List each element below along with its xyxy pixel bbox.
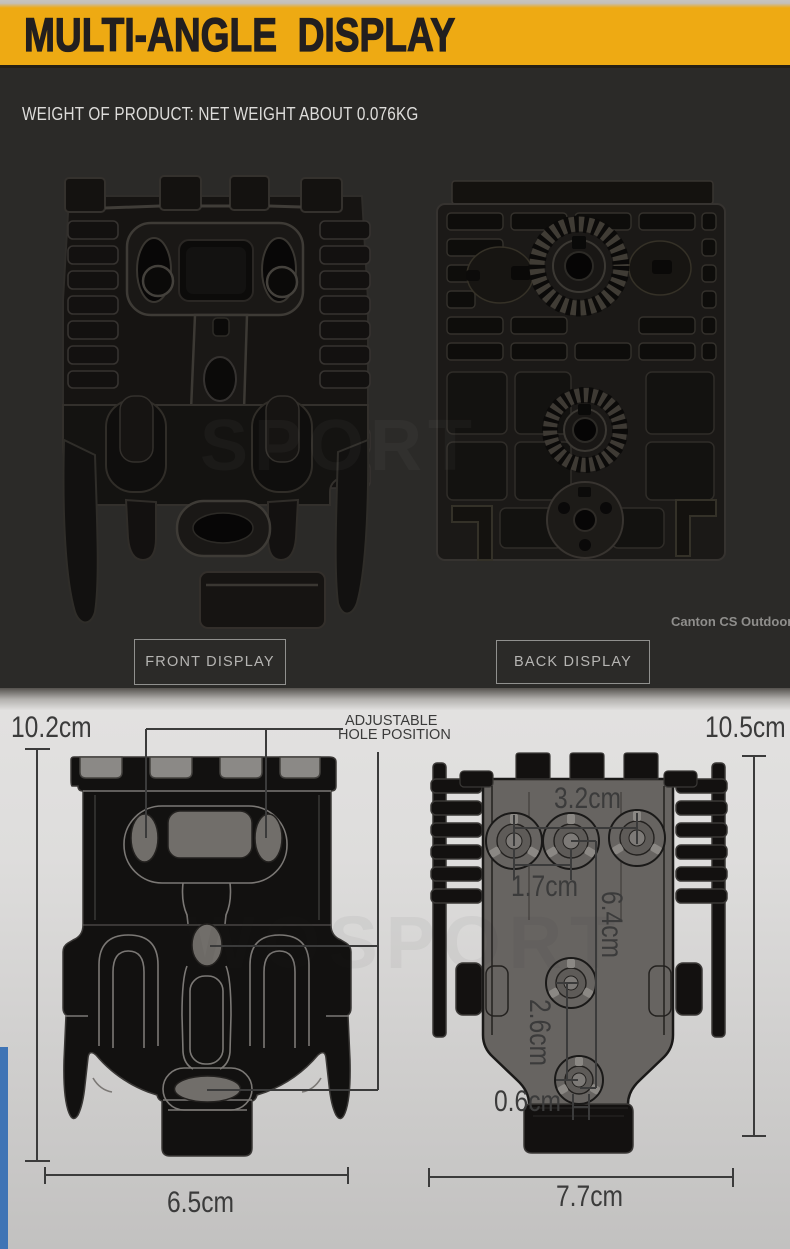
svg-text:WOSPORT: WOSPORT: [185, 901, 623, 984]
